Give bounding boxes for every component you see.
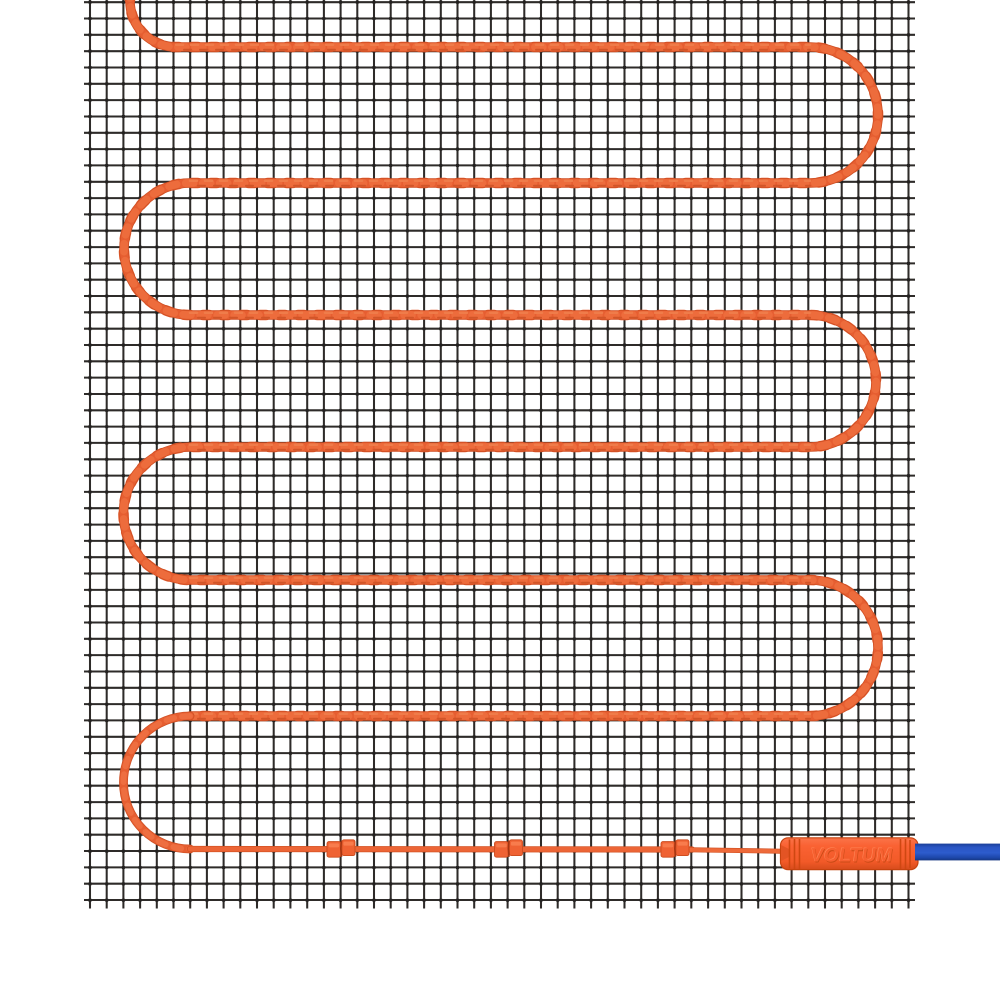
svg-text:VOLTUM: VOLTUM bbox=[809, 845, 894, 867]
